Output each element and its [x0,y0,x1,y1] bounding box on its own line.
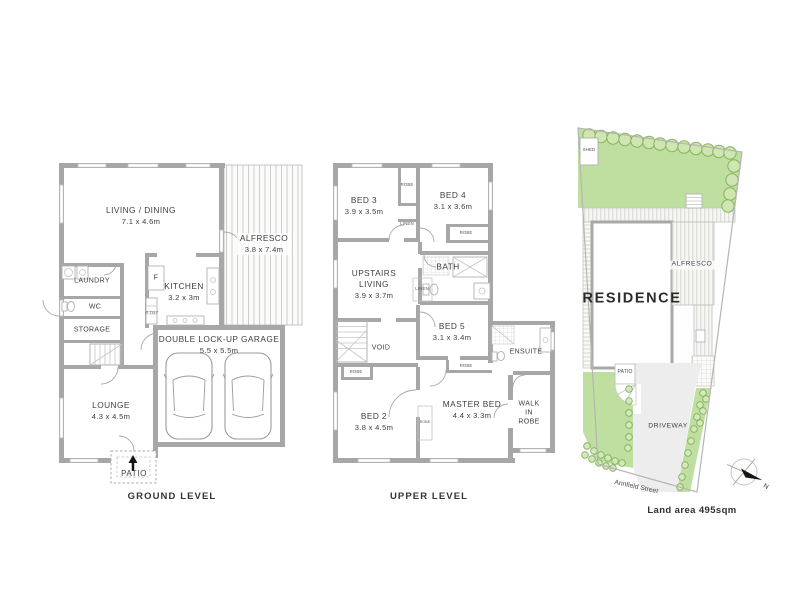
shed-label: SHED [583,147,596,153]
robe-bed5-label: ROBE [460,363,473,369]
robe-hall-label: ROBE [350,369,363,375]
compass-icon: N [727,459,770,491]
floorplan-page: N LIVING / DINING 7.1 x 4.6m ALFRESCO 3.… [0,0,800,600]
site-plan: N [578,128,770,492]
ground-storage-label: STORAGE [74,325,111,334]
pantry-label: P'TRY [146,310,159,316]
upper-level-title: UPPER LEVEL [390,491,468,503]
garage-car-1 [164,353,214,439]
ground-alfresco-label: ALFRESCO 3.8 x 7.4m [237,233,291,255]
land-area-label: Land area 495sqm [647,505,736,517]
ground-kitchen-label: KITCHEN 3.2 x 3m [164,281,204,303]
bed5-label: BED 5 3.1 x 3.4m [433,321,471,343]
ground-wc-label: WC [89,302,101,311]
bed3-label: BED 3 3.9 x 3.5m [345,195,383,217]
ensuite-label: ENSUITE [510,347,543,356]
lounge-label: LOUNGE 4.3 x 4.5m [92,400,130,422]
robe-top-label: ROBE [401,182,414,188]
ground-laundry-label: LAUNDRY [74,276,110,285]
bath-label: BATH [436,262,459,273]
bed2-label: BED 2 3.8 x 4.5m [355,411,393,433]
garage-label: DOUBLE LOCK-UP GARAGE 5.5 x 5.5m [159,334,279,356]
residence-label: RESIDENCE [583,290,682,309]
site-patio-label: PATIO [617,369,632,376]
ground-living-dining-label: LIVING / DINING 7.1 x 4.6m [106,205,176,227]
walk-in-robe-label: WALK IN ROBE [518,399,539,426]
site-alfresco-label: ALFRESCO [669,261,716,270]
ground-patio-label: PATIO [121,469,147,479]
ground-stairs [90,344,122,365]
robe-bed4-label: ROBE [460,230,473,236]
linen-mid-label: LINEN [415,286,428,292]
fridge-label: F [154,273,159,282]
void-label: VOID [372,343,391,352]
linen-top-label: LINEN [400,221,413,227]
upper-stairs [336,321,367,362]
ground-level-title: GROUND LEVEL [128,491,217,503]
laundry-wc-fixtures [62,266,88,312]
robe-master-label: ROBE [420,420,431,425]
bed4-label: BED 4 3.1 x 3.6m [434,190,472,212]
driveway-label: DRIVEWAY [648,423,688,432]
garage-car-2 [223,353,273,439]
back-path [583,208,735,222]
upstairs-living-label: UPSTAIRS LIVING 3.9 x 3.7m [352,268,396,300]
compass-north-label: N [762,483,770,492]
master-bed-label: MASTER BED 4.4 x 3.3m [443,399,501,421]
